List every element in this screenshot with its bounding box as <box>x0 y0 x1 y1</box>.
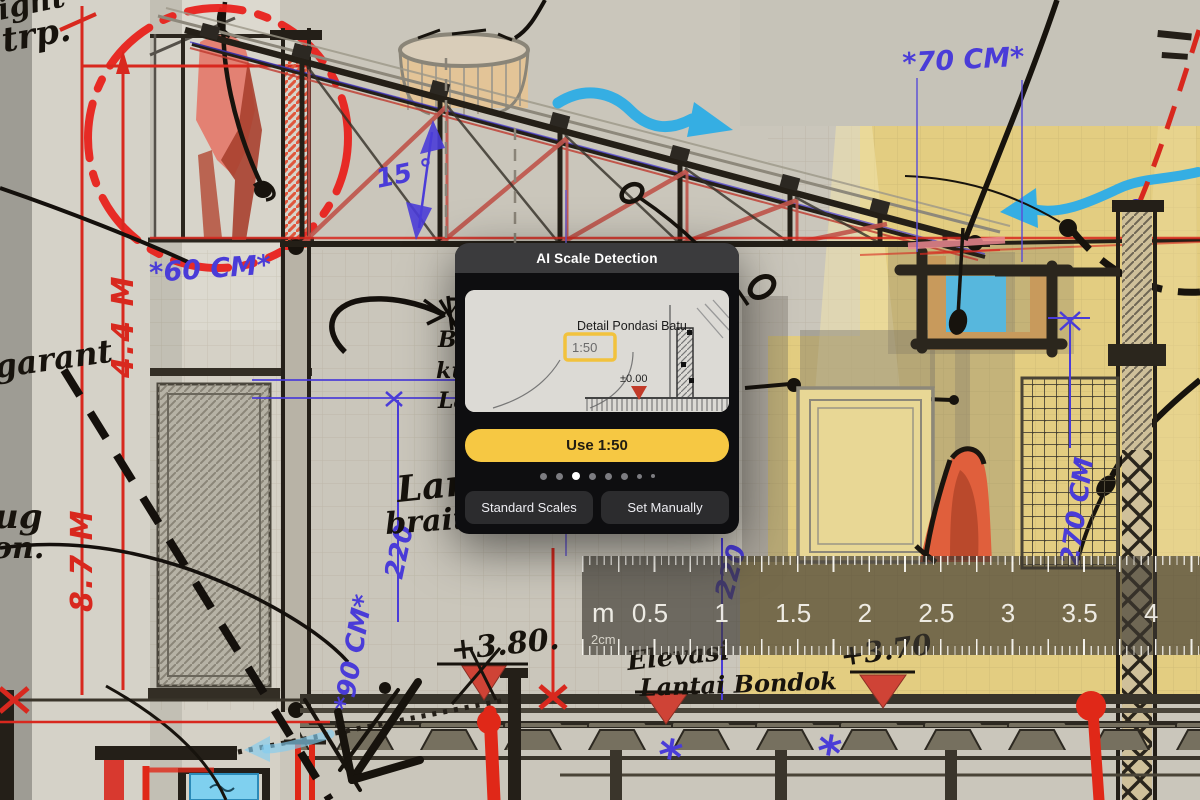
page-dot[interactable] <box>637 474 642 479</box>
set-manually-button[interactable]: Set Manually <box>601 491 729 524</box>
page-dot[interactable] <box>651 474 655 478</box>
page-dot[interactable] <box>556 473 563 480</box>
page-dot[interactable] <box>572 472 580 480</box>
standard-scales-button[interactable]: Standard Scales <box>465 491 593 524</box>
page-dot[interactable] <box>540 473 547 480</box>
ruler-tick-label: 3.5 <box>1062 598 1098 629</box>
ruler-scale-label: 2cm <box>591 632 616 647</box>
ruler-tick-label: 4 <box>1144 598 1158 629</box>
ruler-tick-label: 2 <box>858 598 872 629</box>
page-dot[interactable] <box>605 473 612 480</box>
page-dot[interactable] <box>621 473 628 480</box>
ruler-tick-label: 1 <box>714 598 728 629</box>
preview-drawing-title: Detail Pondasi Batu <box>577 319 687 333</box>
scale-ruler[interactable]: m 2cm 0.511.522.533.54 <box>582 556 1200 655</box>
ruler-tick-label: 1.5 <box>775 598 811 629</box>
ruler-tick-label: 0.5 <box>632 598 668 629</box>
ruler-tick-label: 2.5 <box>918 598 954 629</box>
scale-preview-drawing: Detail Pondasi Batu 1:50 ±0.00 <box>465 290 729 412</box>
ai-scale-detection-dialog: AI Scale Detection Det <box>455 243 739 534</box>
ruler-tick-label: 3 <box>1001 598 1015 629</box>
preview-elevation-label: ±0.00 <box>620 373 647 385</box>
page-dots[interactable] <box>455 469 739 483</box>
scale-preview: Detail Pondasi Batu 1:50 ±0.00 <box>465 290 729 412</box>
app-window: 4.4 M 8.7 M <box>0 0 1200 800</box>
dialog-title: AI Scale Detection <box>455 243 739 273</box>
note-on: on. <box>0 531 44 566</box>
door-frame <box>798 388 933 562</box>
ruler-ticks-top <box>582 556 1200 573</box>
page-dot[interactable] <box>589 473 596 480</box>
use-scale-button[interactable]: Use 1:50 <box>465 429 729 462</box>
ruler-unit-label: m <box>592 598 615 629</box>
dim-8-7m: 8.7 M <box>65 509 100 612</box>
dim-70cm: *70 CM* <box>902 42 1025 79</box>
ruler-ticks-bottom <box>582 638 1200 655</box>
preview-scale-value: 1:50 <box>572 340 597 355</box>
